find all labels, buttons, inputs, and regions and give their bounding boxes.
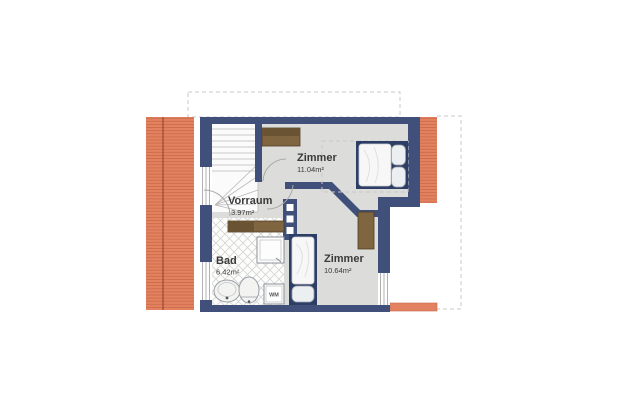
room-label-zimmer2: Zimmer bbox=[324, 253, 364, 265]
toilet bbox=[239, 277, 259, 303]
room-area-bad: 6.42m² bbox=[216, 268, 240, 277]
bed1-pillow-2 bbox=[392, 167, 406, 187]
room-area-vorraum: 3.97m² bbox=[231, 208, 255, 217]
washing-machine-label: WM bbox=[269, 293, 279, 299]
roof-bottom-strip bbox=[390, 303, 437, 311]
room-area-zimmer2: 10.64m² bbox=[324, 266, 352, 275]
floor-plan-page: WM Zimmer 11.04m² Vorraum 3.97m² Bad 6.4… bbox=[0, 0, 620, 410]
sink bbox=[214, 280, 240, 302]
wall-left-upper bbox=[200, 117, 212, 167]
wall-top bbox=[200, 117, 420, 124]
bed2-duvet bbox=[292, 237, 314, 284]
bed-zimmer2 bbox=[289, 234, 317, 305]
roof-left bbox=[146, 117, 194, 310]
floor-plan-canvas: WM Zimmer 11.04m² Vorraum 3.97m² Bad 6.4… bbox=[0, 0, 620, 410]
wall-right-upper bbox=[408, 117, 420, 207]
wall-right-lower bbox=[378, 207, 390, 273]
counter-bad bbox=[228, 221, 284, 232]
window-left-lower bbox=[200, 262, 212, 300]
wall-bottom bbox=[200, 305, 390, 312]
shower bbox=[257, 237, 284, 263]
room-label-bad: Bad bbox=[216, 255, 237, 267]
wardrobe-zimmer2 bbox=[358, 212, 374, 249]
room-label-zimmer1: Zimmer bbox=[297, 152, 337, 164]
bed2-pillow bbox=[292, 286, 314, 302]
wall-stair-partition bbox=[255, 124, 262, 182]
room-label-vorraum: Vorraum bbox=[228, 195, 273, 207]
window-right-lower bbox=[378, 273, 390, 305]
window-left-upper bbox=[200, 167, 212, 205]
wall-step bbox=[378, 197, 420, 207]
wall-left-middle bbox=[200, 205, 212, 262]
room-area-zimmer1: 11.04m² bbox=[297, 165, 324, 174]
bed1-pillow-1 bbox=[392, 145, 406, 165]
roof-right bbox=[420, 117, 437, 203]
shaft-openings bbox=[287, 204, 294, 234]
dresser-zimmer1 bbox=[262, 128, 300, 146]
washing-machine: WM bbox=[264, 284, 284, 304]
